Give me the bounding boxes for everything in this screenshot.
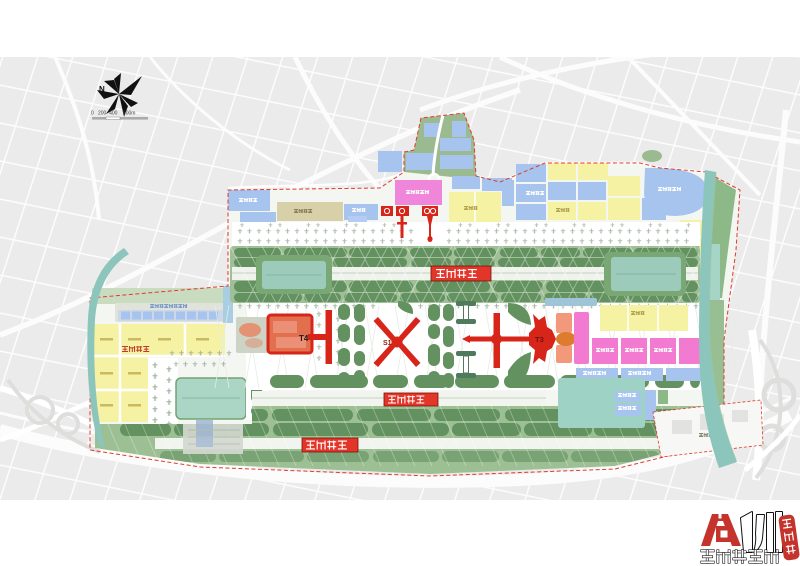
svg-text:T4: T4 <box>299 334 309 343</box>
svg-text:T3: T3 <box>535 335 544 344</box>
svg-text:S1: S1 <box>383 340 392 347</box>
svg-text:N: N <box>99 85 105 94</box>
svg-text:0 200 400 600m: 0 200 400 600m <box>91 111 135 117</box>
